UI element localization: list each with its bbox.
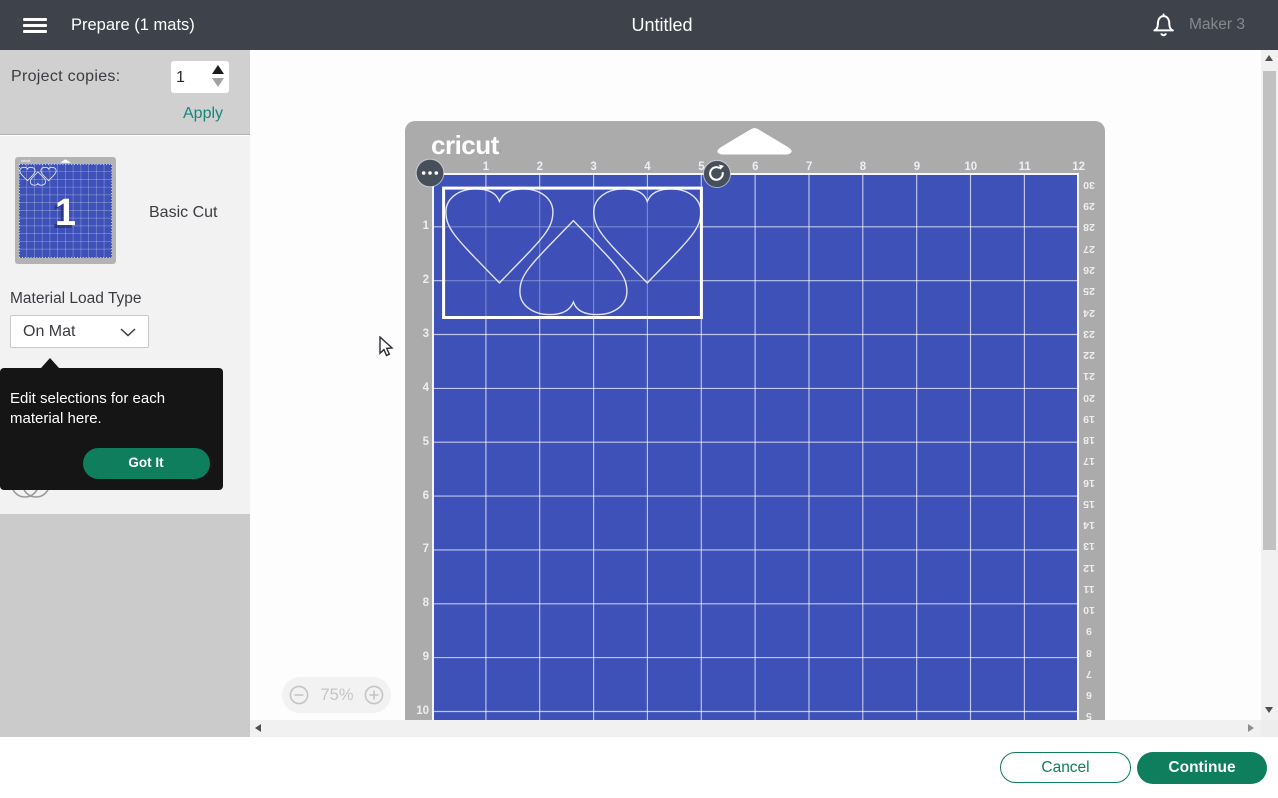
svg-text:cricut: cricut — [21, 159, 31, 163]
svg-text:1: 1 — [55, 192, 76, 234]
